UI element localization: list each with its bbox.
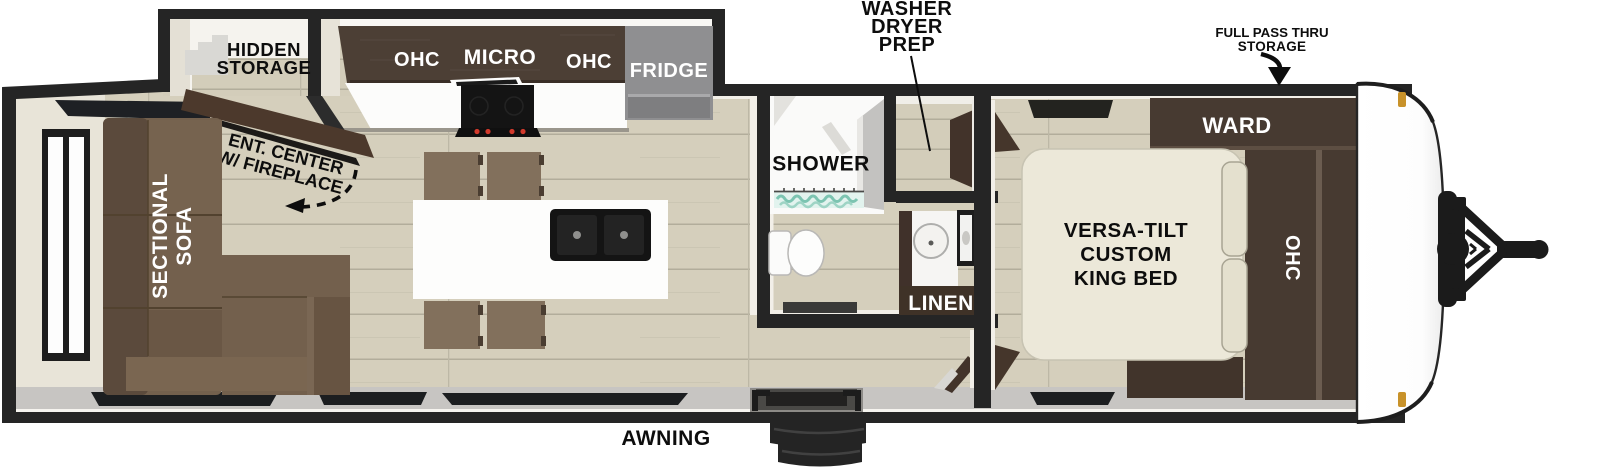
- svg-text:SHOWER: SHOWER: [772, 153, 870, 176]
- svg-text:SOFA: SOFA: [173, 206, 196, 265]
- svg-text:STORAGE: STORAGE: [1238, 39, 1307, 54]
- svg-text:FULL PASS THRU: FULL PASS THRU: [1215, 25, 1328, 40]
- svg-text:OHC: OHC: [1281, 235, 1303, 281]
- svg-text:PREP: PREP: [879, 34, 935, 56]
- svg-text:OHC: OHC: [566, 51, 612, 73]
- svg-text:LINEN: LINEN: [908, 292, 974, 315]
- svg-text:SECTIONAL: SECTIONAL: [149, 173, 172, 299]
- svg-text:FRIDGE: FRIDGE: [630, 60, 709, 82]
- svg-text:OHC: OHC: [394, 49, 440, 71]
- svg-text:STORAGE: STORAGE: [217, 57, 312, 78]
- svg-text:VERSA-TILT: VERSA-TILT: [1064, 219, 1188, 242]
- svg-text:KING BED: KING BED: [1074, 267, 1178, 290]
- svg-text:CUSTOM: CUSTOM: [1080, 243, 1171, 266]
- svg-text:AWNING: AWNING: [621, 427, 710, 450]
- svg-text:WARD: WARD: [1202, 113, 1271, 138]
- svg-text:MICRO: MICRO: [464, 46, 537, 69]
